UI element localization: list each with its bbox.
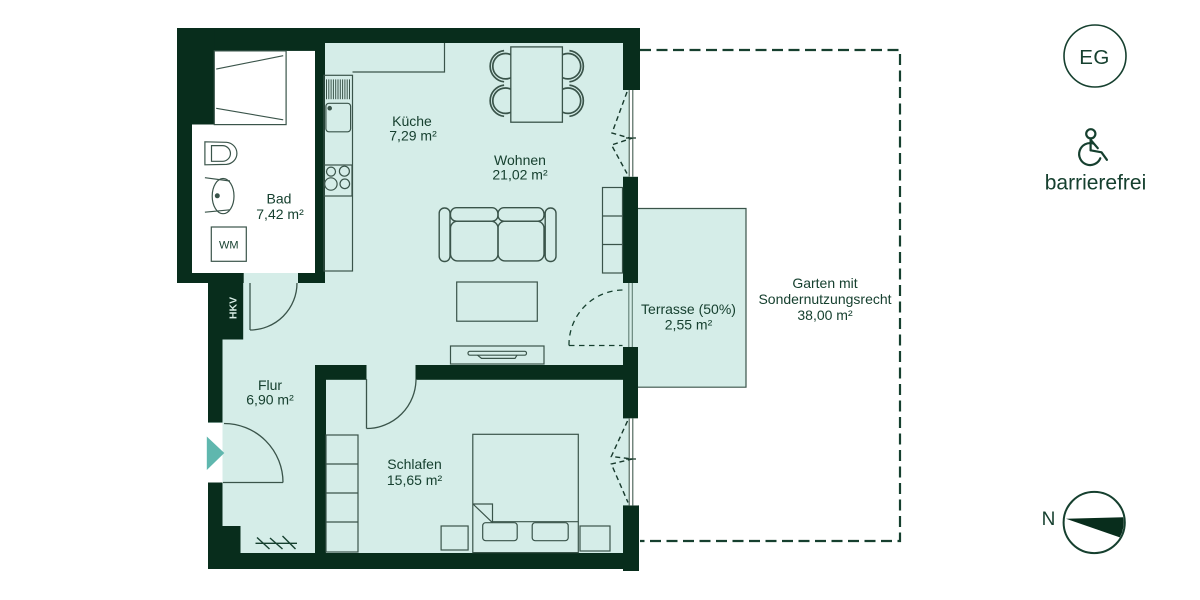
svg-text:N: N	[1042, 509, 1056, 530]
svg-text:Garten mit: Garten mit	[792, 275, 857, 291]
svg-text:EG: EG	[1079, 46, 1110, 69]
svg-text:Terrasse (50%): Terrasse (50%)	[641, 301, 736, 317]
svg-text:Sondernutzungsrecht: Sondernutzungsrecht	[758, 291, 891, 307]
svg-text:Schlafen: Schlafen	[387, 456, 441, 472]
svg-text:21,02 m²: 21,02 m²	[492, 167, 548, 183]
svg-text:38,00 m²: 38,00 m²	[797, 307, 853, 323]
svg-text:15,65 m²: 15,65 m²	[387, 472, 443, 488]
svg-text:Bad: Bad	[267, 191, 292, 207]
svg-text:barrierefrei: barrierefrei	[1045, 172, 1147, 195]
svg-text:WM: WM	[219, 240, 239, 252]
svg-text:6,90 m²: 6,90 m²	[246, 392, 294, 408]
svg-text:2,55 m²: 2,55 m²	[665, 317, 713, 333]
svg-text:HKV: HKV	[228, 297, 240, 319]
svg-text:7,29 m²: 7,29 m²	[389, 128, 437, 144]
svg-text:7,42 m²: 7,42 m²	[256, 206, 304, 222]
